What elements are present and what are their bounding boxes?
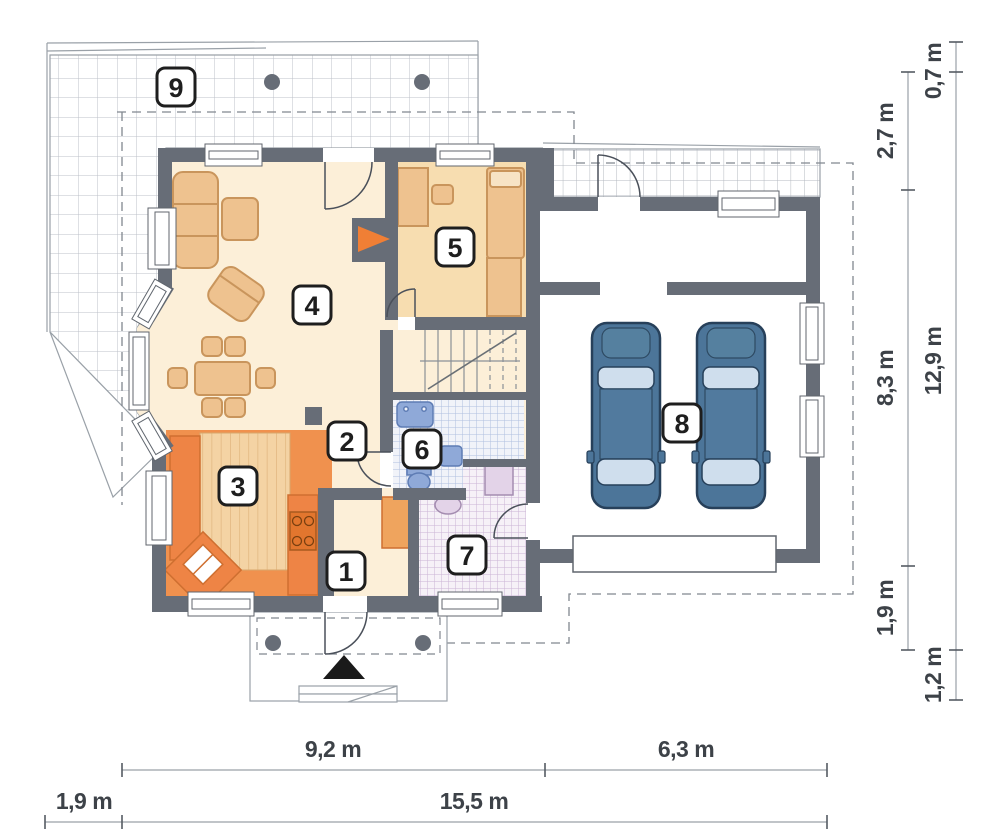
svg-text:3: 3: [230, 472, 245, 502]
porch-column: [415, 635, 431, 651]
dim-right-outer-3: 1,2 m: [920, 647, 946, 703]
terrace-column: [414, 74, 430, 90]
room-label-8: 8: [663, 404, 701, 442]
svg-text:9: 9: [168, 73, 183, 103]
room-label-2: 2: [328, 422, 366, 460]
room-label-1: 1: [327, 552, 365, 590]
window: [800, 303, 824, 364]
porch-column: [265, 635, 281, 651]
window: [146, 471, 172, 545]
dim-right-outer-1: 0,7 m: [920, 43, 946, 99]
kitchen-stove: [290, 512, 316, 550]
chair: [225, 337, 245, 356]
porch-step: [299, 694, 397, 702]
svg-text:1: 1: [338, 557, 353, 587]
chair: [256, 368, 275, 388]
window: [148, 208, 176, 269]
dim-right-inner-1: 2,7 m: [872, 103, 898, 159]
dim-right-inner-3: 1,9 m: [872, 580, 898, 636]
floor-plan-svg: 1 2 3 4 5 6 7 8: [0, 0, 1000, 836]
garage-door: [573, 536, 776, 572]
coffee-table: [222, 198, 258, 240]
window: [438, 592, 502, 616]
room-label-9: 9: [157, 68, 195, 106]
dim-right-inner-2: 8,3 m: [872, 350, 898, 406]
wardrobe: [487, 258, 521, 316]
dim-bottom-upper-1: 9,2 m: [305, 736, 361, 762]
sofa: [173, 172, 218, 268]
window: [436, 144, 494, 166]
window: [800, 396, 824, 457]
pillar: [305, 407, 322, 425]
dim-bottom-lower-2: 15,5 m: [440, 788, 509, 814]
room-label-5: 5: [436, 228, 474, 266]
svg-text:5: 5: [447, 233, 462, 263]
svg-text:8: 8: [674, 409, 689, 439]
dim-right-outer-2: 12,9 m: [920, 327, 946, 396]
room-label-4: 4: [293, 286, 331, 324]
stool: [432, 185, 453, 204]
car-right-icon: [692, 323, 770, 508]
room1-wardrobe: [382, 497, 412, 548]
room-label-7: 7: [448, 536, 486, 574]
garage-terrace-strip: [543, 149, 820, 197]
washbasin: [397, 402, 433, 427]
svg-text:6: 6: [414, 435, 429, 465]
room-label-3: 3: [219, 467, 257, 505]
floor-plan-page: 1 2 3 4 5 6 7 8: [0, 0, 1000, 836]
window: [205, 144, 262, 166]
chair: [225, 398, 245, 417]
dining-table: [195, 362, 250, 395]
window: [718, 191, 779, 217]
dim-bottom-lower-1: 1,9 m: [56, 788, 112, 814]
entrance-porch: [250, 612, 447, 702]
room-label-6: 6: [403, 430, 441, 468]
svg-text:4: 4: [304, 291, 319, 321]
terrace-column: [264, 74, 280, 90]
chair: [168, 368, 187, 388]
chair: [202, 398, 222, 417]
svg-text:2: 2: [339, 427, 354, 457]
car-left-icon: [587, 323, 665, 508]
chair: [202, 337, 222, 356]
shower: [485, 466, 513, 495]
small-basin: [440, 446, 462, 466]
window: [129, 332, 149, 410]
pillow: [490, 171, 521, 187]
window: [188, 592, 254, 616]
desk: [398, 168, 428, 226]
dim-bottom-upper-2: 6,3 m: [658, 736, 714, 762]
porch-step: [299, 686, 397, 694]
svg-text:7: 7: [459, 541, 474, 571]
